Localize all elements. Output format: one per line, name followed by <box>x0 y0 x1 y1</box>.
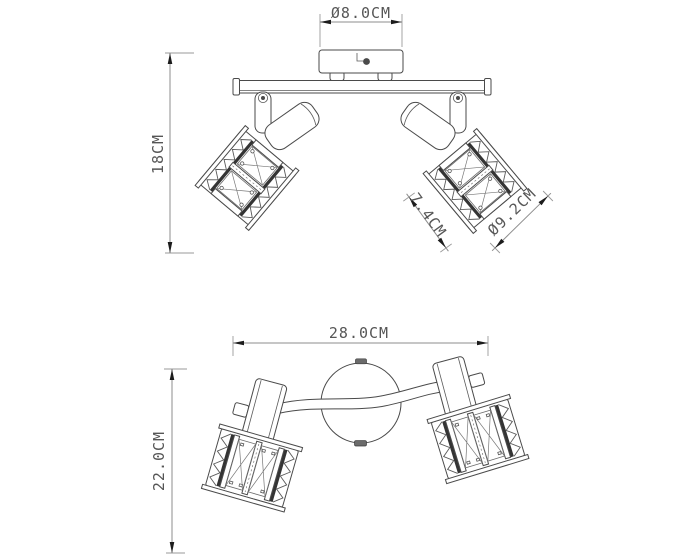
dim-fixture-height: 18CM <box>149 53 194 253</box>
crystal-shade-left-bottom <box>201 424 302 512</box>
dim-label-width: 28.0CM <box>329 324 389 342</box>
spotlight-left-front <box>195 92 323 230</box>
canopy-clip-bottom <box>355 441 367 446</box>
dim-fixture-depth: 22.0CM <box>150 369 187 553</box>
dim-canopy-diameter: Ø8.0CM <box>320 4 402 47</box>
ceiling-canopy <box>319 50 403 81</box>
bar-end-cap-right <box>485 79 492 96</box>
dim-fixture-width: 28.0CM <box>233 324 488 356</box>
canopy-screw <box>363 58 370 65</box>
crystal-shade-right-bottom <box>427 394 529 483</box>
technical-drawing-page: Ø8.0CM 18CM 7.4CM Ø9.2CM <box>0 0 700 560</box>
spotlight-left-bottom <box>201 374 302 512</box>
bottom-view: 28.0CM 22.0CM <box>150 324 529 553</box>
spotlight-right-bottom <box>427 352 529 483</box>
dim-label-canopy-diameter: Ø8.0CM <box>331 4 391 22</box>
canopy-clip-top <box>356 359 367 364</box>
bar-end-cap-left <box>233 79 240 96</box>
lamp-dimension-diagram: Ø8.0CM 18CM 7.4CM Ø9.2CM <box>0 0 700 560</box>
front-view: Ø8.0CM 18CM 7.4CM Ø9.2CM <box>149 4 553 253</box>
dim-label-depth: 22.0CM <box>150 431 168 491</box>
dim-label-height: 18CM <box>149 134 167 174</box>
mounting-bar <box>233 79 491 96</box>
